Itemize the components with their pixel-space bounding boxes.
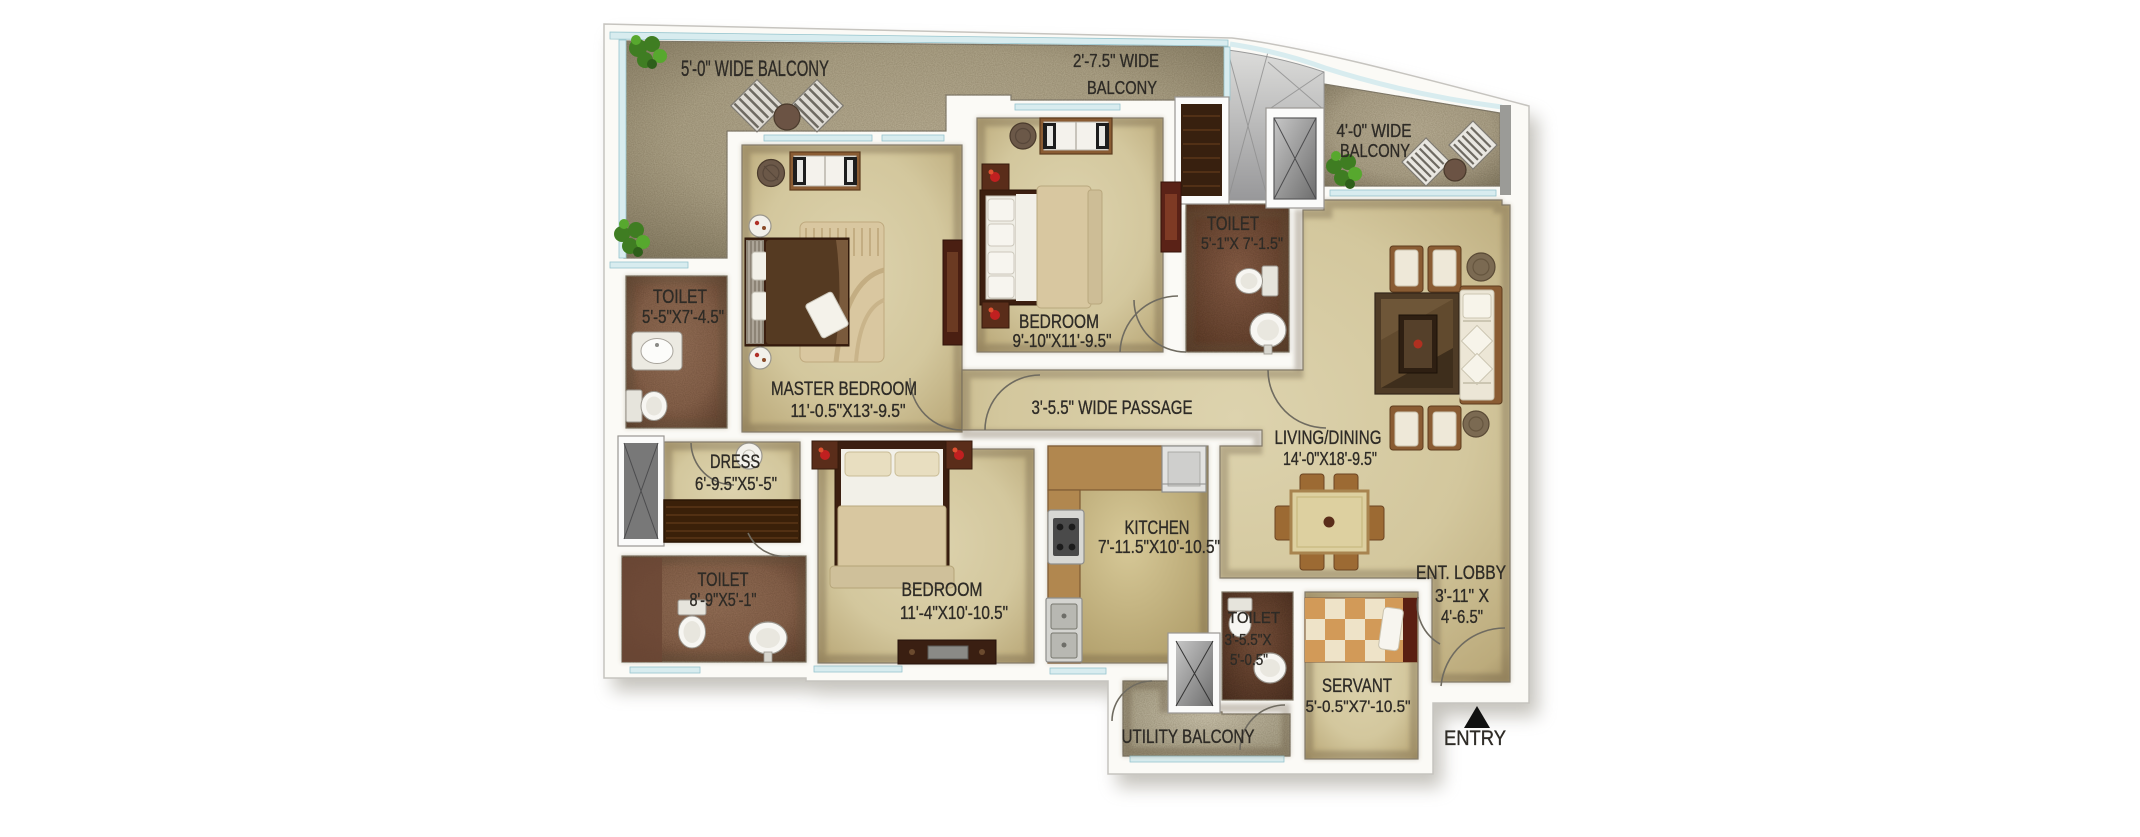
svg-text:TOILET: TOILET — [653, 287, 707, 308]
svg-text:ENT. LOBBY: ENT. LOBBY — [1416, 563, 1506, 584]
svg-text:TOILET: TOILET — [1228, 610, 1280, 627]
svg-text:4'-0" WIDE: 4'-0" WIDE — [1337, 121, 1412, 141]
svg-text:5'-1"X 7'-1.5": 5'-1"X 7'-1.5" — [1201, 234, 1283, 253]
svg-text:14'-0"X18'-9.5": 14'-0"X18'-9.5" — [1283, 449, 1377, 469]
svg-text:KITCHEN: KITCHEN — [1125, 518, 1190, 539]
svg-text:2'-7.5" WIDE: 2'-7.5" WIDE — [1073, 51, 1159, 71]
svg-text:8'-9"X5'-1": 8'-9"X5'-1" — [690, 590, 757, 610]
svg-text:BEDROOM: BEDROOM — [902, 580, 983, 601]
svg-text:BEDROOM: BEDROOM — [1019, 312, 1099, 333]
svg-text:9'-10"X11'-9.5": 9'-10"X11'-9.5" — [1013, 331, 1112, 351]
svg-text:7'-11.5"X10'-10.5": 7'-11.5"X10'-10.5" — [1098, 537, 1220, 557]
svg-text:5'-0.5"X7'-10.5": 5'-0.5"X7'-10.5" — [1306, 697, 1411, 716]
svg-text:SERVANT: SERVANT — [1322, 676, 1392, 697]
svg-text:ENTRY: ENTRY — [1444, 727, 1506, 750]
svg-text:DRESS: DRESS — [710, 452, 760, 473]
svg-text:3'-11" X: 3'-11" X — [1435, 586, 1489, 606]
svg-text:11'-0.5"X13'-9.5": 11'-0.5"X13'-9.5" — [791, 401, 906, 421]
svg-text:11'-4"X10'-10.5": 11'-4"X10'-10.5" — [900, 603, 1008, 623]
svg-text:MASTER BEDROOM: MASTER BEDROOM — [771, 379, 917, 400]
svg-text:3'-5.5" WIDE PASSAGE: 3'-5.5" WIDE PASSAGE — [1032, 398, 1193, 419]
svg-text:6'-9.5"X5'-5": 6'-9.5"X5'-5" — [695, 474, 777, 494]
svg-text:BALCONY: BALCONY — [1087, 78, 1157, 98]
svg-text:5'-0.5": 5'-0.5" — [1230, 652, 1268, 669]
svg-text:TOILET: TOILET — [698, 570, 749, 591]
svg-text:LIVING/DINING: LIVING/DINING — [1275, 428, 1382, 449]
svg-text:5'-0" WIDE BALCONY: 5'-0" WIDE BALCONY — [681, 56, 829, 81]
svg-text:3'-5.5"X: 3'-5.5"X — [1225, 632, 1272, 649]
svg-text:TOILET: TOILET — [1207, 214, 1259, 235]
svg-text:4'-6.5": 4'-6.5" — [1441, 607, 1483, 627]
svg-text:BALCONY: BALCONY — [1340, 141, 1410, 161]
svg-text:UTILITY BALCONY: UTILITY BALCONY — [1122, 727, 1255, 748]
svg-text:5'-5"X7'-4.5": 5'-5"X7'-4.5" — [642, 307, 724, 327]
